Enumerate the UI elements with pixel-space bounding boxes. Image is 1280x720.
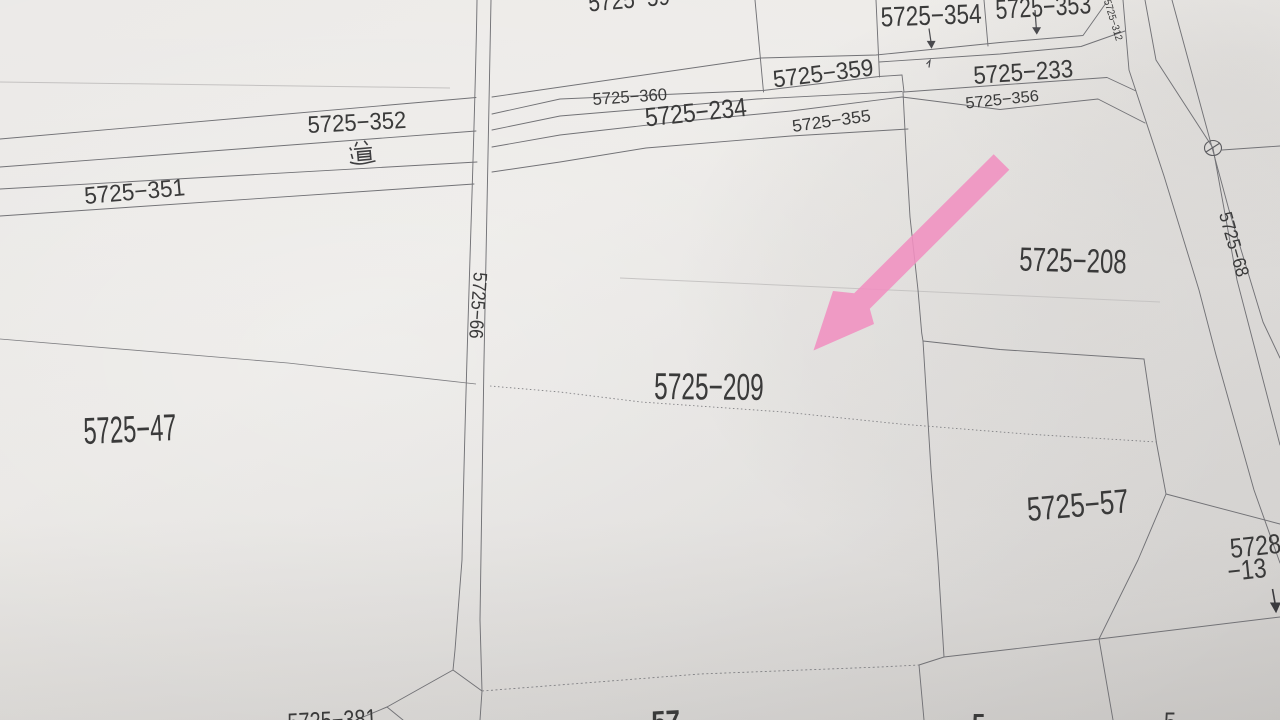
svg-text:5725−47: 5725−47 (83, 407, 178, 453)
svg-text:5725−208: 5725−208 (1019, 242, 1127, 282)
svg-text:57: 57 (651, 704, 682, 720)
svg-text:5: 5 (972, 708, 985, 720)
svg-text:5725−209: 5725−209 (654, 365, 764, 409)
svg-text:5725−66: 5725−66 (465, 271, 492, 339)
svg-text:−13: −13 (1226, 553, 1268, 587)
svg-text:5: 5 (1164, 708, 1176, 720)
svg-text:5725−354: 5725−354 (880, 0, 982, 33)
svg-text:5725−352: 5725−352 (307, 106, 407, 138)
